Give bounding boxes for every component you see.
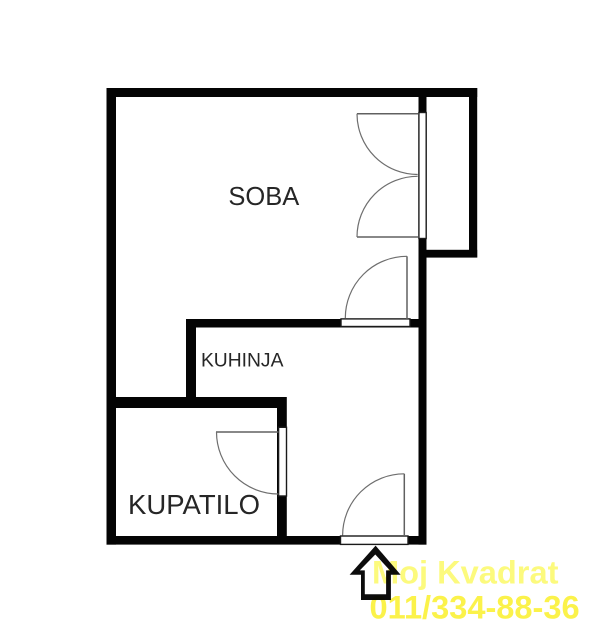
svg-text:KUPATILO: KUPATILO	[128, 489, 260, 520]
svg-text:011/334-88-36: 011/334-88-36	[370, 588, 580, 625]
svg-text:SOBA: SOBA	[228, 183, 299, 211]
svg-text:Moj Kvadrat: Moj Kvadrat	[372, 554, 559, 591]
svg-text:KUHINJA: KUHINJA	[201, 350, 284, 371]
